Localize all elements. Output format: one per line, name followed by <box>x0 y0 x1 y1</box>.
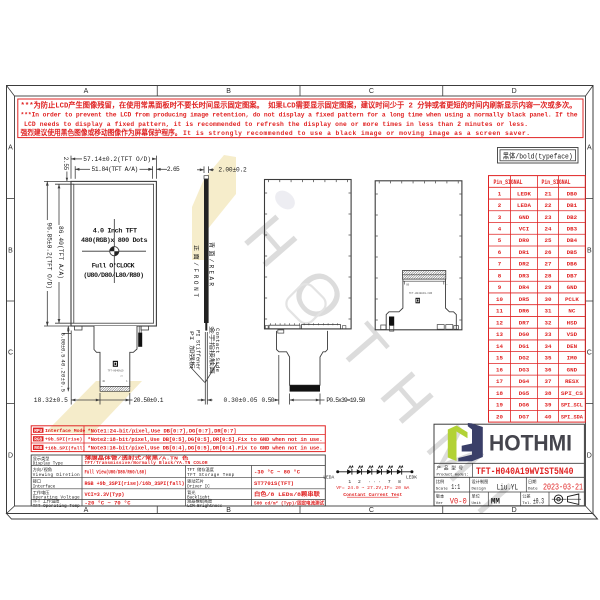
svg-text:8: 8 <box>398 479 401 485</box>
svg-text:Scale: Scale <box>436 487 449 492</box>
svg-text:VCI=3.3V(Typ): VCI=3.3V(Typ) <box>85 492 125 498</box>
svg-text:DR1: DR1 <box>519 249 530 256</box>
svg-text:18.32±0.5: 18.32±0.5 <box>34 397 68 404</box>
svg-text:RESX: RESX <box>565 378 579 385</box>
svg-text:DEN: DEN <box>567 343 578 350</box>
svg-text:·: · <box>368 480 371 485</box>
svg-text:DB7: DB7 <box>567 272 578 279</box>
svg-text:11: 11 <box>496 308 503 315</box>
svg-text:·: · <box>373 480 376 485</box>
svg-text:D: D <box>512 507 517 514</box>
svg-text:B: B <box>8 248 13 255</box>
svg-text:86.40(TFT A/A): 86.40(TFT A/A) <box>57 226 64 279</box>
svg-text:12: 12 <box>496 319 503 326</box>
svg-text:HSD: HSD <box>567 319 578 326</box>
svg-text:IM0: IM0 <box>567 355 578 362</box>
svg-text:Driver IC: Driver IC <box>187 484 210 489</box>
svg-text:GND: GND <box>519 214 530 221</box>
svg-text:2.65: 2.65 <box>167 166 180 173</box>
svg-text:SPI_SDA: SPI_SDA <box>561 413 583 420</box>
svg-text:TFT/Transmissive/Normally Blac: TFT/Transmissive/Normally Black/YA.TN CO… <box>85 461 208 466</box>
svg-text:Unit: Unit <box>472 501 482 506</box>
svg-text:8: 8 <box>498 272 502 279</box>
svg-text:DG6: DG6 <box>519 402 530 409</box>
svg-text:DG3: DG3 <box>519 366 530 373</box>
svg-text:7: 7 <box>388 479 391 485</box>
svg-text:B: B <box>226 88 231 95</box>
svg-text:40.20±0.5: 40.20±0.5 <box>59 359 66 392</box>
svg-text:B: B <box>587 248 592 255</box>
svg-text:TFT-H040A19-C0N: TFT-H040A19-C0N <box>409 292 433 295</box>
svg-text:TFT-H040A19: TFT-H040A19 <box>108 370 124 373</box>
svg-text:+9b_SPI(rise): +9b_SPI(rise) <box>45 437 83 443</box>
svg-text:30: 30 <box>545 296 552 303</box>
svg-text:D: D <box>8 453 13 460</box>
svg-text:3: 3 <box>498 214 502 221</box>
svg-text:It is strongly recommended to: It is strongly recommended to use a blac… <box>183 130 530 137</box>
svg-text:Date: Date <box>528 488 538 492</box>
svg-text:40: 40 <box>545 413 552 420</box>
svg-text:2023-03-21: 2023-03-21 <box>543 482 583 492</box>
svg-text:DR4: DR4 <box>519 284 530 291</box>
svg-text:18: 18 <box>496 390 503 397</box>
svg-text:1: 1 <box>498 190 502 197</box>
svg-text:9: 9 <box>498 284 502 291</box>
svg-text:DG1: DG1 <box>519 343 530 350</box>
svg-text:25: 25 <box>545 237 552 244</box>
svg-text:Viewing Diretion: Viewing Diretion <box>33 473 80 478</box>
svg-text:±0.3: ±0.3 <box>533 498 544 507</box>
svg-text:DB6: DB6 <box>567 261 578 268</box>
svg-text:DG5: DG5 <box>519 390 530 397</box>
svg-text:Design: Design <box>472 487 487 492</box>
svg-text:28: 28 <box>545 272 552 279</box>
svg-text:TFT Operating Temp: TFT Operating Temp <box>33 504 80 509</box>
svg-text:23: 23 <box>545 214 552 221</box>
svg-text:1:1: 1:1 <box>451 484 460 492</box>
svg-text:ST7701S(TFT): ST7701S(TFT) <box>254 481 294 487</box>
svg-text:4: 4 <box>498 225 502 232</box>
svg-text:34: 34 <box>545 343 552 350</box>
svg-text:-30 °C ~ 80 °C: -30 °C ~ 80 °C <box>254 469 301 475</box>
svg-text:Pin_SIGNAL: Pin_SIGNAL <box>494 179 523 186</box>
svg-text:NC: NC <box>568 308 575 315</box>
svg-text:HOTHMI: HOTHMI <box>489 430 572 455</box>
svg-text:26: 26 <box>545 249 552 256</box>
svg-text:VCI: VCI <box>519 225 530 232</box>
svg-text:16: 16 <box>496 366 503 373</box>
svg-text:MPU: MPU <box>34 429 42 434</box>
svg-text:·: · <box>378 480 381 485</box>
svg-text:51.84(TFT A/A): 51.84(TFT A/A) <box>92 166 139 173</box>
svg-text:A: A <box>8 145 13 152</box>
svg-text:LEDK: LEDK <box>517 190 531 197</box>
svg-text:***为防止LCD产生图像残留，在使用常黑面板时不要长时间显: ***为防止LCD产生图像残留，在使用常黑面板时不要长时间显示固定图案。 如果L… <box>21 101 577 111</box>
svg-text:RGB: RGB <box>34 437 42 442</box>
svg-text:-20 °C ~ 70 °C: -20 °C ~ 70 °C <box>85 501 132 507</box>
svg-text:LEDK: LEDK <box>406 474 417 480</box>
svg-text:14: 14 <box>496 343 503 350</box>
svg-text:Display Type: Display Type <box>33 462 64 467</box>
svg-text:SPI_CS: SPI_CS <box>561 390 584 397</box>
svg-text:7: 7 <box>498 261 502 268</box>
svg-text:13: 13 <box>496 331 503 338</box>
svg-text:35: 35 <box>545 355 552 362</box>
svg-text:33: 33 <box>545 331 552 338</box>
svg-text:22: 22 <box>545 202 552 209</box>
svg-text:38: 38 <box>545 390 552 397</box>
svg-text:DG0: DG0 <box>519 331 530 338</box>
svg-text:GND: GND <box>567 366 578 373</box>
svg-text:LEDA: LEDA <box>517 202 531 209</box>
svg-text:TFT-H040A19WVIST5N40: TFT-H040A19WVIST5N40 <box>476 466 574 478</box>
svg-text:19: 19 <box>496 402 503 409</box>
svg-text:500 cd/m² (Typ)/固定电流测试: 500 cd/m² (Typ)/固定电流测试 <box>254 500 324 507</box>
svg-text:DG4: DG4 <box>519 378 530 385</box>
svg-text:*Note1:24-bit/pixel,Use DB[0:7: *Note1:24-bit/pixel,Use DB[0:7],DG[0:7],… <box>88 427 237 434</box>
svg-text:1: 1 <box>348 479 351 485</box>
svg-text:DR6: DR6 <box>519 308 530 315</box>
svg-text:C: C <box>369 507 374 514</box>
svg-text:VF= 24.0 ~ 27.2V,IF= 20 mA: VF= 24.0 ~ 27.2V,IF= 20 mA <box>336 485 409 491</box>
svg-text:黑体/bold(typeface): 黑体/bold(typeface) <box>503 152 573 162</box>
svg-text:57.14±0.2(TFT O/D): 57.14±0.2(TFT O/D) <box>83 156 151 163</box>
svg-text:A: A <box>587 145 592 152</box>
svg-text:D: D <box>512 88 517 95</box>
svg-text:Tol.: Tol. <box>522 501 532 506</box>
svg-text:21: 21 <box>545 190 552 197</box>
svg-text:D: D <box>587 453 592 460</box>
svg-text:Interface Mode: Interface Mode <box>45 428 85 434</box>
svg-text:Interface: Interface <box>33 484 56 489</box>
svg-text:DB2: DB2 <box>567 214 578 221</box>
svg-text:96.85±0.2(TFT O/D): 96.85±0.2(TFT O/D) <box>45 222 52 289</box>
svg-text:Liu.YL: Liu.YL <box>497 483 519 492</box>
svg-text:MM: MM <box>491 498 500 506</box>
svg-text:0.30±0.05: 0.30±0.05 <box>224 397 258 404</box>
svg-text:24: 24 <box>545 225 552 232</box>
svg-text:DR7: DR7 <box>519 319 530 326</box>
svg-text:C: C <box>8 350 13 357</box>
svg-text:36: 36 <box>545 366 552 373</box>
svg-text:DB1: DB1 <box>567 202 578 209</box>
svg-text:正面/FRONT: 正面/FRONT <box>192 245 199 297</box>
svg-text:DG2: DG2 <box>519 355 530 362</box>
svg-text:2.00±0.2: 2.00±0.2 <box>218 166 247 173</box>
svg-text:A: A <box>84 507 89 514</box>
svg-text:A: A <box>84 88 89 95</box>
svg-text:C: C <box>369 88 374 95</box>
svg-text:Ver: Ver <box>436 501 444 506</box>
svg-text:32: 32 <box>545 319 552 326</box>
svg-text:DB3: DB3 <box>567 225 578 232</box>
svg-text:DG7: DG7 <box>519 413 530 420</box>
svg-text:SPI_SCL: SPI_SCL <box>561 402 583 409</box>
svg-text:+16b_SPI(fall): +16b_SPI(fall) <box>45 445 85 451</box>
svg-text:39: 39 <box>545 402 552 409</box>
svg-text:DR0: DR0 <box>519 237 530 244</box>
svg-text:PI Stiffener: PI Stiffener <box>194 330 201 370</box>
svg-text:V0-0: V0-0 <box>450 497 467 507</box>
svg-text:10: 10 <box>496 296 503 303</box>
svg-text:TFT Storage Temp: TFT Storage Temp <box>187 474 234 478</box>
svg-text:LCM Brightness: LCM Brightness <box>187 504 223 509</box>
svg-text:17: 17 <box>496 378 503 385</box>
svg-text:29: 29 <box>545 284 552 291</box>
svg-text:DB0: DB0 <box>567 190 578 197</box>
svg-text:LEDA: LEDA <box>323 474 334 480</box>
svg-text:4.0 Inch TFT: 4.0 Inch TFT <box>93 228 137 236</box>
svg-text:20.50±0.1: 20.50±0.1 <box>134 397 164 404</box>
svg-text:2: 2 <box>358 479 361 485</box>
svg-text:***In order to prevent the LCD: ***In order to prevent the LCD from prod… <box>21 112 578 119</box>
svg-text:白色/8 LEDs/8颗串联: 白色/8 LEDs/8颗串联 <box>254 490 321 498</box>
svg-text:LCD needs to display a fixed p: LCD needs to display a fixed pattern, it… <box>24 121 528 128</box>
svg-text:Full O'CLOCK: Full O'CLOCK <box>92 263 136 271</box>
svg-text:(U80/D80/L80/R80): (U80/D80/L80/R80) <box>83 272 144 280</box>
svg-text:0.50: 0.50 <box>262 397 275 404</box>
svg-text:6: 6 <box>498 249 502 256</box>
svg-text:Full View(U80/D80/R60/L60): Full View(U80/D80/R60/L60) <box>85 469 147 475</box>
svg-text:*Note2:18-bit/pixel,Use DB[0:5: *Note2:18-bit/pixel,Use DB[0:5],DG[0:5],… <box>88 436 323 443</box>
svg-text:RGB +9b_3SPI(rise)/16b_3SPI(fa: RGB +9b_3SPI(rise)/16b_3SPI(fall) <box>85 481 185 487</box>
svg-text:DB4: DB4 <box>567 237 578 244</box>
svg-text:P0.5x39=19.50: P0.5x39=19.50 <box>326 397 365 404</box>
svg-text:GND: GND <box>567 284 578 291</box>
svg-text:B: B <box>226 507 231 514</box>
svg-text:5: 5 <box>498 237 502 244</box>
svg-text:C: C <box>587 350 592 357</box>
svg-text:31: 31 <box>545 308 552 315</box>
svg-text:PCLK: PCLK <box>565 296 579 303</box>
svg-text:5.00±0.5: 5.00±0.5 <box>59 333 66 358</box>
svg-text:2: 2 <box>498 202 502 209</box>
svg-text:37: 37 <box>545 378 552 385</box>
svg-text:|←: |← <box>445 282 449 286</box>
svg-text:DR5: DR5 <box>519 296 530 303</box>
svg-text:2.55: 2.55 <box>62 157 69 171</box>
svg-text:DB5: DB5 <box>567 249 578 256</box>
svg-text:强烈建议使用黑色图像或移动图像作为屏幕保护程序。: 强烈建议使用黑色图像或移动图像作为屏幕保护程序。 <box>21 128 182 138</box>
svg-text:VSD: VSD <box>567 331 578 338</box>
svg-text:Product model:: Product model: <box>437 472 469 477</box>
svg-text:Pin_SIGNAL: Pin_SIGNAL <box>542 179 571 186</box>
svg-text:15: 15 <box>496 355 503 362</box>
svg-text:DR3: DR3 <box>519 272 530 279</box>
svg-text:Constant Current Test: Constant Current Test <box>343 492 402 498</box>
svg-text:27: 27 <box>545 261 552 268</box>
svg-text:DR2: DR2 <box>519 261 530 268</box>
svg-text:20: 20 <box>496 413 503 420</box>
svg-text:*Note3:16-bit/pixel,Use DB[0:4: *Note3:16-bit/pixel,Use DB[0:4],DG[0:5],… <box>88 445 323 452</box>
svg-text:产 品 型 号: 产 品 型 号 <box>437 464 464 471</box>
svg-text:RGB: RGB <box>34 446 42 451</box>
